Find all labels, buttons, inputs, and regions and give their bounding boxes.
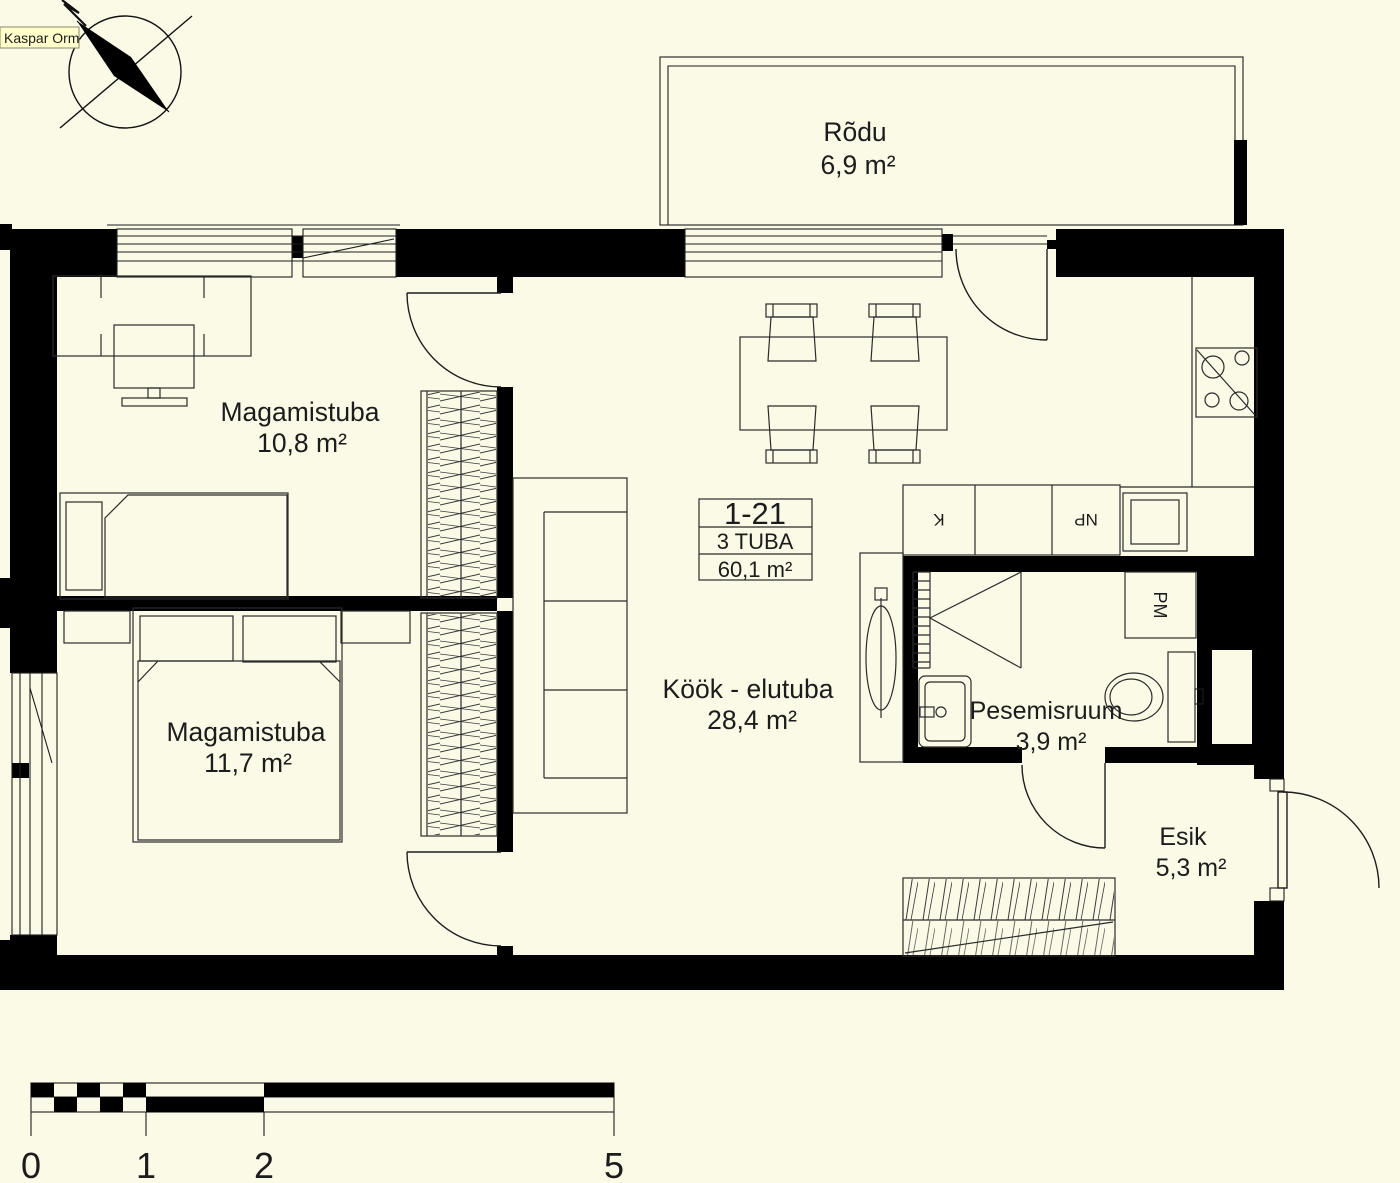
bedroom2-name: Magamistuba <box>166 717 325 747</box>
bedroom1-area: 10,8 m² <box>257 428 347 458</box>
scale-tick-2: 2 <box>254 1145 274 1183</box>
washing-machine-label: PM <box>1150 592 1170 619</box>
scale-tick-0: 0 <box>21 1145 41 1183</box>
floor-plan: Kaspar Orm Rõdu 6,9 m² <box>0 0 1400 1183</box>
balcony-area: 6,9 m² <box>820 150 895 180</box>
canvas-background <box>0 0 1400 1183</box>
living-area: 28,4 m² <box>707 705 797 735</box>
fridge-label: K <box>933 510 945 529</box>
hallway-wardrobe <box>903 878 1115 956</box>
wardrobe-bedroom1 <box>421 391 497 598</box>
hallway-area: 5,3 m² <box>1156 854 1227 882</box>
hallway-name: Esik <box>1159 823 1207 851</box>
bathroom-name: Pesemisruum <box>970 697 1123 725</box>
author-note: Kaspar Orm <box>0 27 79 48</box>
unit-type: 3 TUBA <box>717 529 794 554</box>
dishwasher-label: NP <box>1074 510 1098 529</box>
unit-area: 60,1 m² <box>718 557 793 582</box>
bedroom2-area: 11,7 m² <box>204 748 292 778</box>
bathroom-area: 3,9 m² <box>1016 728 1087 756</box>
scale-tick-5: 5 <box>604 1145 624 1183</box>
balcony-name: Rõdu <box>823 117 886 147</box>
wardrobe-bedroom2 <box>421 613 497 836</box>
living-name: Köök - elutuba <box>663 674 834 704</box>
scale-tick-1: 1 <box>136 1145 156 1183</box>
unit-number: 1-21 <box>724 496 786 531</box>
bedroom1-name: Magamistuba <box>220 397 379 427</box>
author-label: Kaspar Orm <box>4 30 79 46</box>
